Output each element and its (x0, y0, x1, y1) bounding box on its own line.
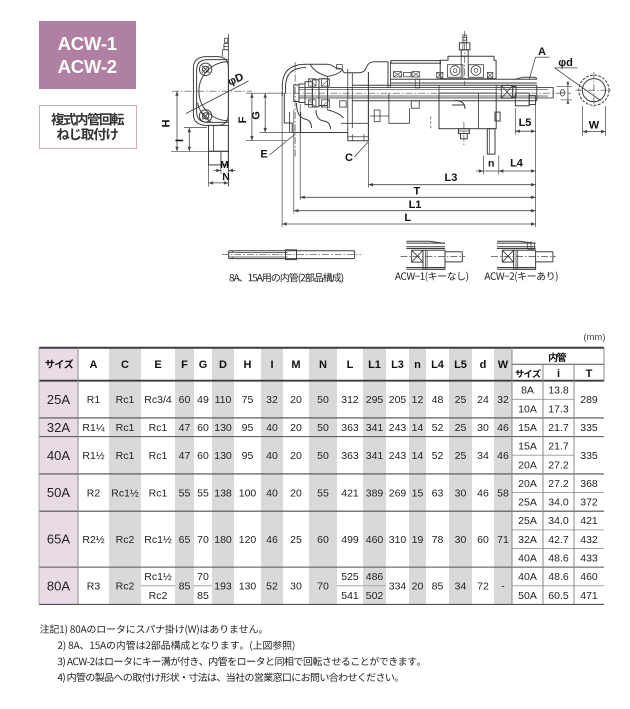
svg-text:65A: 65A (47, 532, 70, 547)
svg-text:13.8: 13.8 (548, 385, 569, 397)
svg-text:50: 50 (317, 422, 329, 434)
svg-text:433: 433 (580, 552, 598, 564)
svg-text:499: 499 (341, 534, 359, 546)
svg-text:32A: 32A (47, 420, 70, 435)
svg-text:M: M (220, 159, 229, 171)
svg-text:60: 60 (317, 534, 329, 546)
svg-text:50A: 50A (518, 590, 537, 602)
svg-text:25: 25 (455, 422, 467, 434)
svg-text:8A: 8A (521, 385, 534, 397)
svg-text:138: 138 (214, 487, 232, 499)
svg-text:L4: L4 (510, 157, 524, 169)
svg-text:243: 243 (389, 450, 407, 462)
svg-text:421: 421 (341, 487, 359, 499)
svg-text:L5: L5 (454, 359, 467, 371)
svg-text:65: 65 (179, 534, 191, 546)
svg-text:486: 486 (366, 571, 384, 583)
svg-text:21.7: 21.7 (548, 422, 569, 434)
svg-text:H: H (244, 359, 252, 371)
svg-text:W: W (498, 359, 509, 371)
svg-text:460: 460 (580, 571, 598, 583)
svg-text:Rc2: Rc2 (116, 534, 135, 546)
svg-text:Rc1: Rc1 (149, 487, 168, 499)
svg-text:30: 30 (477, 422, 489, 434)
svg-text:24: 24 (477, 394, 489, 406)
svg-text:130: 130 (214, 422, 232, 434)
svg-text:110: 110 (215, 394, 232, 406)
svg-text:32: 32 (497, 394, 509, 406)
svg-text:A: A (538, 46, 546, 58)
svg-text:389: 389 (366, 487, 384, 499)
svg-text:341: 341 (366, 450, 384, 462)
svg-text:47: 47 (179, 450, 191, 462)
svg-text:75: 75 (242, 394, 254, 406)
svg-text:L: L (404, 212, 411, 224)
svg-text:49: 49 (197, 394, 209, 406)
svg-text:205: 205 (389, 394, 407, 406)
svg-text:R3: R3 (87, 580, 101, 592)
svg-text:M: M (291, 359, 300, 371)
svg-text:312: 312 (341, 394, 359, 406)
svg-text:95: 95 (242, 450, 254, 462)
svg-text:14: 14 (412, 422, 424, 434)
svg-text:70: 70 (197, 534, 209, 546)
svg-text:25: 25 (290, 534, 302, 546)
svg-text:71: 71 (497, 534, 509, 546)
svg-text:295: 295 (366, 394, 384, 406)
svg-text:A: A (90, 359, 98, 371)
svg-text:460: 460 (366, 534, 384, 546)
svg-text:W: W (589, 120, 600, 132)
svg-text:φd: φd (558, 57, 573, 69)
svg-text:335: 335 (580, 422, 598, 434)
svg-text:20A: 20A (518, 459, 537, 471)
svg-text:95: 95 (242, 422, 254, 434)
svg-text:N: N (319, 359, 327, 371)
svg-text:34: 34 (455, 580, 467, 592)
svg-text:40A: 40A (518, 552, 537, 564)
svg-text:85: 85 (179, 580, 191, 592)
svg-text:46: 46 (266, 534, 278, 546)
svg-text:17.3: 17.3 (548, 403, 569, 415)
svg-text:50: 50 (317, 450, 329, 462)
svg-text:432: 432 (580, 534, 598, 546)
svg-text:52: 52 (432, 450, 444, 462)
svg-text:269: 269 (389, 487, 407, 499)
svg-text:193: 193 (214, 580, 232, 592)
svg-text:n: n (488, 157, 494, 169)
svg-text:Rc1: Rc1 (149, 450, 168, 462)
svg-text:85: 85 (432, 580, 444, 592)
svg-text:63: 63 (432, 487, 444, 499)
svg-text:Rc1: Rc1 (116, 450, 135, 462)
svg-text:R1¼: R1¼ (82, 422, 104, 434)
svg-text:341: 341 (366, 422, 384, 434)
svg-text:541: 541 (341, 590, 359, 602)
svg-text:334: 334 (389, 580, 407, 592)
svg-text:25: 25 (455, 450, 467, 462)
svg-text:34.0: 34.0 (548, 497, 569, 509)
svg-text:40A: 40A (518, 571, 537, 583)
svg-text:Rc1: Rc1 (116, 394, 135, 406)
svg-text:34: 34 (477, 450, 489, 462)
svg-text:L4: L4 (431, 359, 445, 371)
svg-text:30: 30 (455, 534, 467, 546)
svg-text:25: 25 (455, 394, 467, 406)
svg-text:G: G (250, 111, 262, 120)
svg-text:60.5: 60.5 (548, 590, 569, 602)
svg-text:50: 50 (317, 394, 329, 406)
svg-text:10A: 10A (518, 403, 537, 415)
svg-text:L5: L5 (519, 117, 532, 129)
svg-text:Rc1½: Rc1½ (144, 534, 172, 546)
svg-text:32: 32 (266, 394, 278, 406)
svg-text:G: G (199, 359, 208, 371)
svg-text:F: F (237, 116, 249, 123)
svg-text:L1: L1 (409, 199, 422, 211)
svg-text:20: 20 (412, 580, 424, 592)
svg-text:20: 20 (290, 422, 302, 434)
svg-text:d: d (480, 359, 487, 371)
svg-text:T: T (414, 186, 421, 198)
svg-text:T: T (586, 368, 593, 380)
svg-text:R2: R2 (87, 487, 101, 499)
svg-text:E: E (260, 149, 267, 161)
svg-text:52: 52 (266, 580, 278, 592)
svg-text:46: 46 (477, 487, 489, 499)
svg-text:120: 120 (239, 534, 257, 546)
svg-text:243: 243 (389, 422, 407, 434)
svg-text:46: 46 (497, 422, 509, 434)
svg-text:21.7: 21.7 (548, 441, 569, 453)
svg-text:14: 14 (412, 450, 424, 462)
svg-text:D: D (219, 359, 227, 371)
svg-text:25A: 25A (518, 515, 537, 527)
svg-text:I: I (270, 359, 273, 371)
svg-text:368: 368 (580, 478, 598, 490)
svg-text:L3: L3 (444, 172, 457, 184)
svg-text:40A: 40A (47, 448, 70, 463)
svg-text:Rc1: Rc1 (149, 422, 168, 434)
svg-text:12: 12 (412, 394, 424, 406)
svg-text:363: 363 (341, 450, 359, 462)
svg-text:310: 310 (389, 534, 407, 546)
svg-text:60: 60 (197, 422, 209, 434)
svg-text:52: 52 (432, 422, 444, 434)
svg-text:40: 40 (266, 487, 278, 499)
svg-text:E: E (154, 359, 161, 371)
svg-text:Rc3/4: Rc3/4 (144, 394, 172, 406)
svg-text:78: 78 (432, 534, 444, 546)
svg-text:30: 30 (290, 580, 302, 592)
svg-text:R1: R1 (87, 394, 101, 406)
svg-text:502: 502 (366, 590, 384, 602)
svg-text:30: 30 (455, 487, 467, 499)
svg-text:130: 130 (239, 580, 257, 592)
svg-text:32A: 32A (518, 534, 537, 546)
svg-text:85: 85 (197, 590, 209, 602)
svg-text:48: 48 (432, 394, 444, 406)
svg-text:20A: 20A (518, 478, 537, 490)
svg-text:58: 58 (497, 487, 509, 499)
svg-text:L3: L3 (391, 359, 404, 371)
svg-text:19: 19 (412, 534, 424, 546)
svg-text:40: 40 (266, 450, 278, 462)
svg-text:46: 46 (497, 450, 509, 462)
svg-text:60: 60 (477, 534, 489, 546)
svg-text:15A: 15A (518, 441, 537, 453)
svg-text:R2½: R2½ (82, 534, 104, 546)
svg-text:F: F (181, 359, 188, 371)
svg-text:C: C (121, 359, 129, 371)
svg-text:471: 471 (580, 590, 598, 602)
svg-text:289: 289 (580, 394, 598, 406)
svg-text:20: 20 (290, 394, 302, 406)
svg-text:15: 15 (412, 487, 424, 499)
svg-text:372: 372 (580, 497, 598, 509)
svg-text:L: L (347, 359, 354, 371)
svg-text:50A: 50A (47, 485, 70, 500)
svg-text:55: 55 (197, 487, 209, 499)
svg-text:I: I (174, 139, 186, 142)
svg-text:60: 60 (179, 394, 191, 406)
svg-text:72: 72 (477, 580, 489, 592)
svg-text:48.6: 48.6 (548, 552, 569, 564)
svg-text:335: 335 (580, 450, 598, 462)
svg-text:Rc2: Rc2 (116, 580, 135, 592)
svg-text:130: 130 (214, 450, 232, 462)
svg-text:55: 55 (179, 487, 191, 499)
svg-text:Rc1½: Rc1½ (144, 571, 172, 583)
svg-text:40: 40 (266, 422, 278, 434)
svg-text:n: n (414, 359, 421, 371)
svg-text:48.6: 48.6 (548, 571, 569, 583)
svg-text:25A: 25A (518, 497, 537, 509)
svg-text:R1½: R1½ (82, 450, 104, 462)
svg-text:55: 55 (317, 487, 329, 499)
svg-text:363: 363 (341, 422, 359, 434)
svg-text:70: 70 (197, 571, 209, 583)
svg-text:180: 180 (214, 534, 232, 546)
svg-text:N: N (222, 171, 230, 183)
svg-text:27.2: 27.2 (548, 459, 569, 471)
svg-text:25A: 25A (47, 392, 70, 407)
svg-text:i: i (557, 368, 560, 380)
svg-text:70: 70 (317, 580, 329, 592)
svg-text:H: H (161, 119, 173, 127)
svg-text:Rc2: Rc2 (149, 590, 168, 602)
svg-text:φD: φD (226, 71, 245, 88)
svg-text:100: 100 (239, 487, 257, 499)
svg-text:421: 421 (580, 515, 598, 527)
svg-text:15A: 15A (518, 422, 537, 434)
svg-text:27.2: 27.2 (548, 478, 569, 490)
svg-text:42.7: 42.7 (548, 534, 569, 546)
svg-text:Rc1: Rc1 (116, 422, 135, 434)
svg-text:80A: 80A (47, 578, 70, 593)
svg-text:L1: L1 (368, 359, 381, 371)
svg-text:C: C (345, 152, 353, 164)
svg-text:60: 60 (197, 450, 209, 462)
svg-text:20: 20 (290, 487, 302, 499)
svg-text:525: 525 (341, 571, 359, 583)
svg-text:-: - (501, 580, 505, 592)
svg-text:20: 20 (290, 450, 302, 462)
svg-text:Rc1½: Rc1½ (111, 487, 139, 499)
svg-text:47: 47 (179, 422, 191, 434)
svg-text:34.0: 34.0 (548, 515, 569, 527)
